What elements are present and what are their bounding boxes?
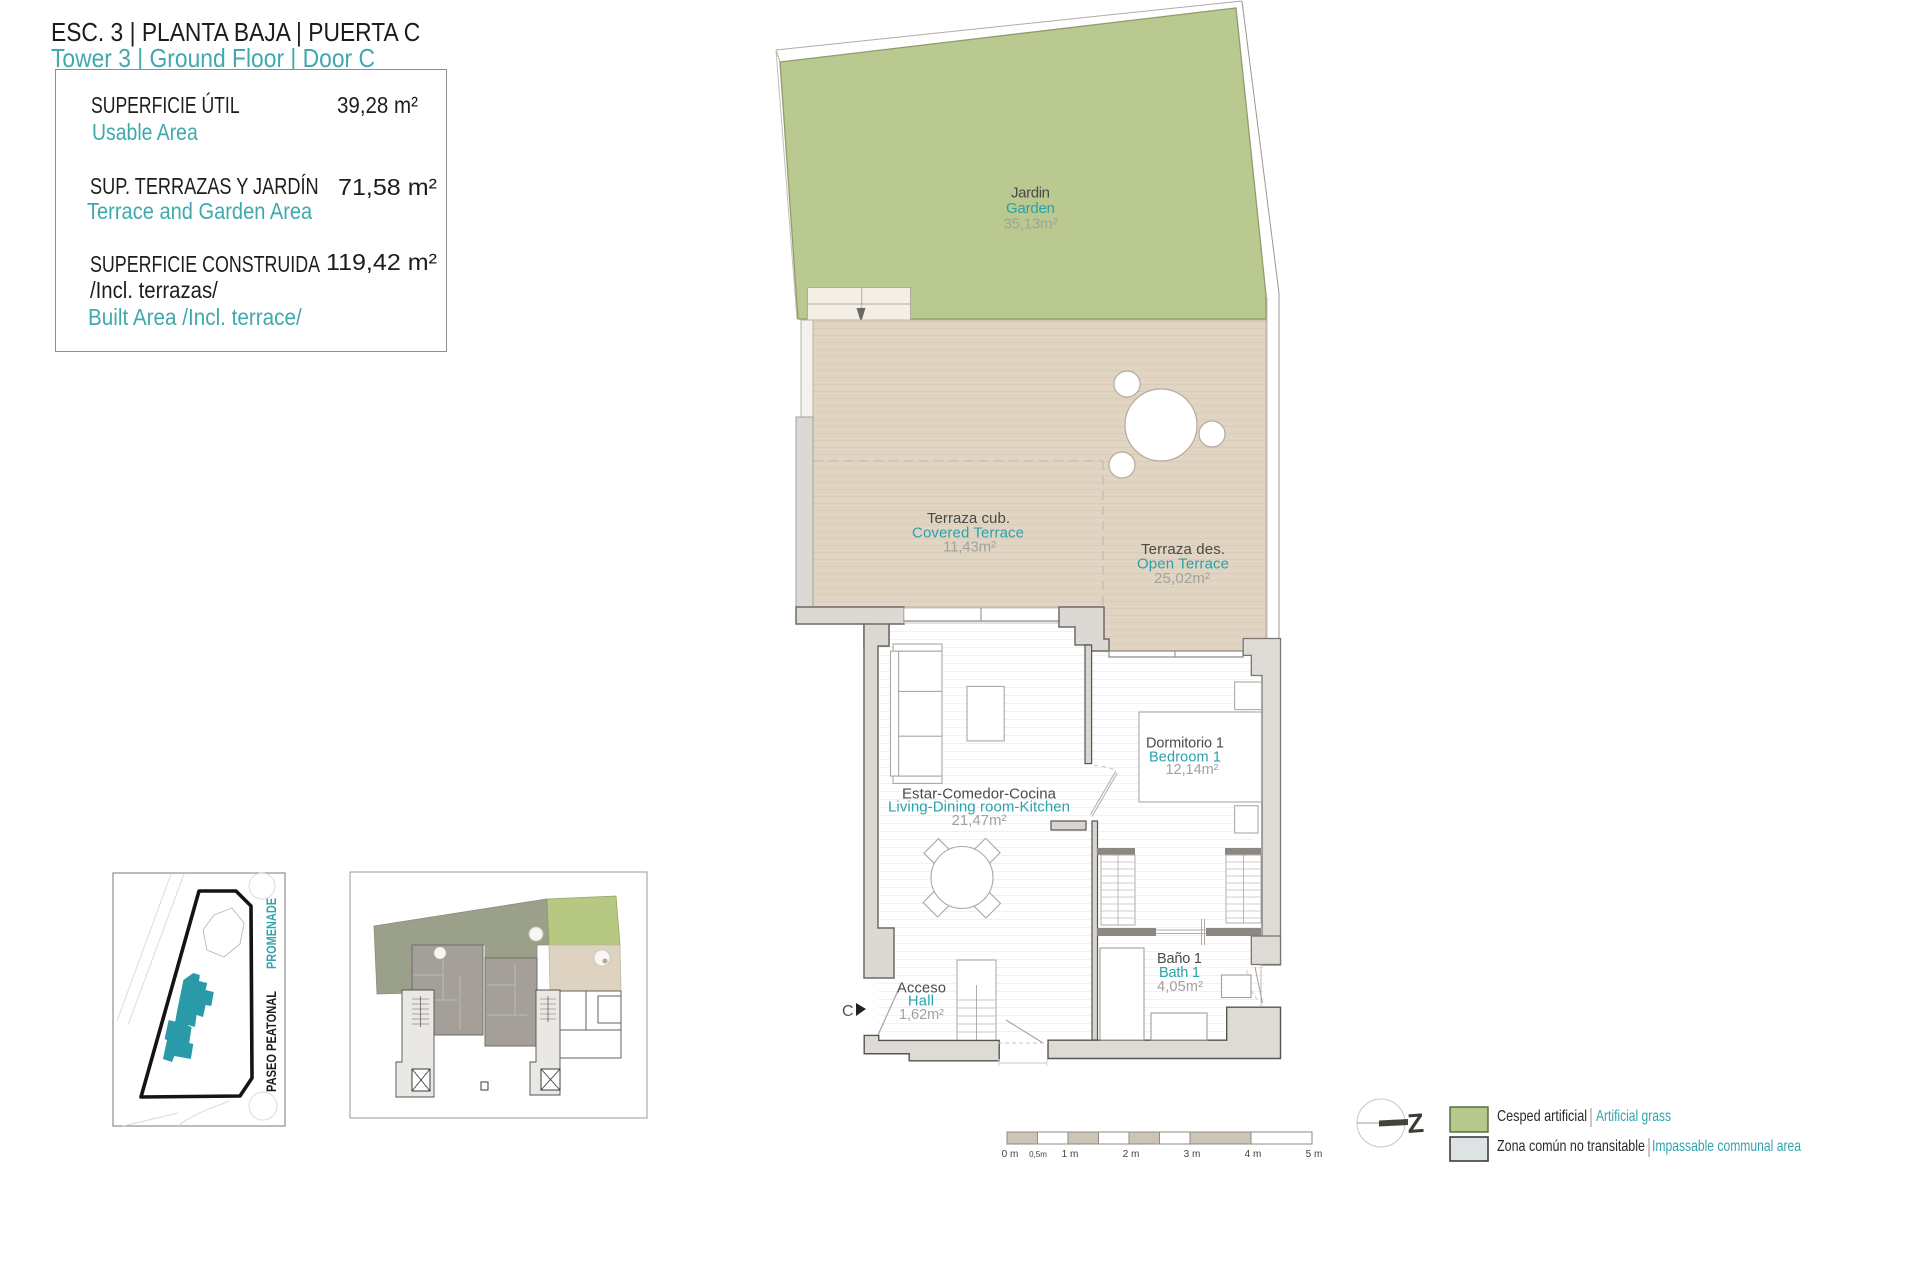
svg-text:2 m: 2 m <box>1123 1149 1140 1160</box>
svg-text:11,43m²: 11,43m² <box>943 539 996 556</box>
svg-text:C: C <box>842 1003 854 1020</box>
svg-text:12,14m²: 12,14m² <box>1166 762 1219 778</box>
svg-text:35,13m²: 35,13m² <box>1004 216 1058 233</box>
svg-text:Jardin: Jardin <box>1011 185 1050 202</box>
svg-text:PROMENADE: PROMENADE <box>263 898 279 969</box>
svg-text:25,02m²: 25,02m² <box>1154 570 1210 587</box>
svg-text:0,5m: 0,5m <box>1029 1150 1047 1159</box>
svg-text:21,47m²: 21,47m² <box>952 812 1007 829</box>
svg-text:0 m: 0 m <box>1002 1149 1019 1160</box>
svg-text:Garden: Garden <box>1006 200 1055 217</box>
svg-text:4,05m²: 4,05m² <box>1157 979 1203 995</box>
svg-text:3 m: 3 m <box>1184 1149 1201 1160</box>
svg-text:1,62m²: 1,62m² <box>899 1007 944 1023</box>
svg-text:4 m: 4 m <box>1245 1149 1262 1160</box>
svg-text:Z: Z <box>1406 1108 1425 1139</box>
svg-text:5 m: 5 m <box>1306 1149 1323 1160</box>
svg-text:PASEO PEATONAL: PASEO PEATONAL <box>263 991 279 1092</box>
svg-text:1 m: 1 m <box>1062 1149 1079 1160</box>
